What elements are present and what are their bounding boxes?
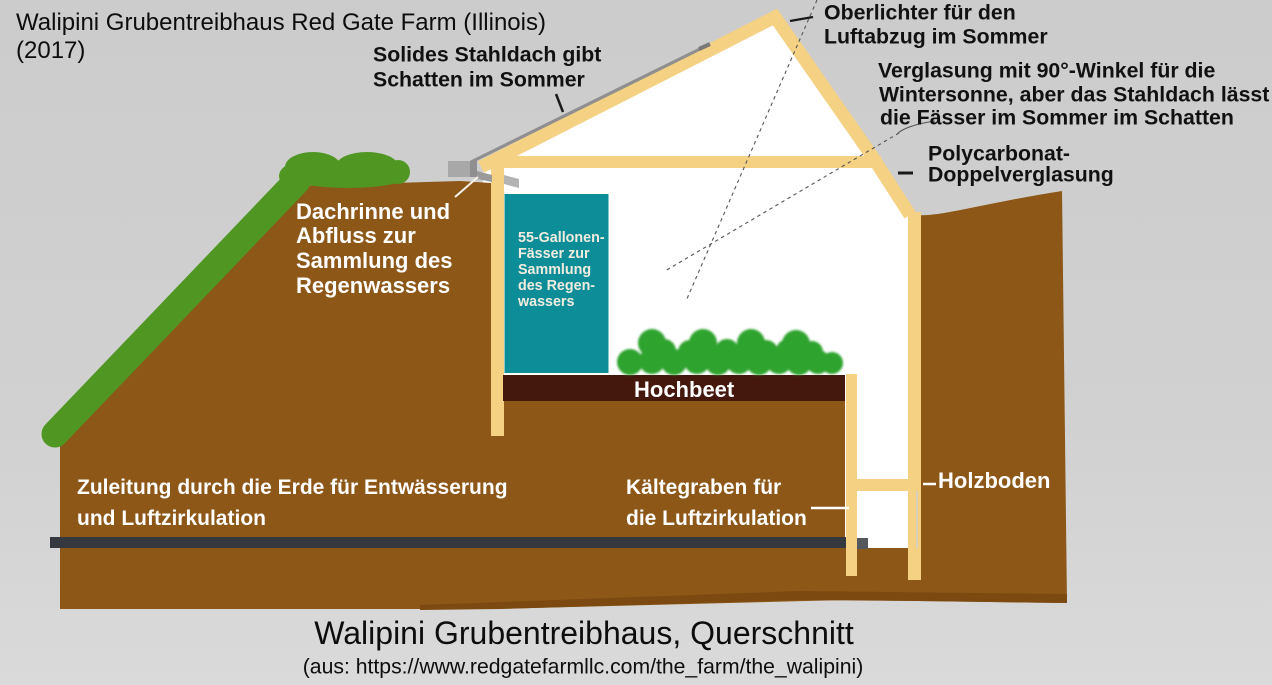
svg-text:Verglasung mit 90°-Winkel für: Verglasung mit 90°-Winkel für die: [878, 59, 1215, 83]
svg-text:Abfluss zur: Abfluss zur: [296, 223, 416, 248]
svg-text:Fässer zur: Fässer zur: [518, 246, 590, 262]
svg-text:wassers: wassers: [517, 294, 574, 310]
svg-text:Schatten im Sommer: Schatten im Sommer: [373, 68, 585, 92]
svg-text:Dachrinne und: Dachrinne und: [296, 199, 450, 224]
svg-text:55-Gallonen-: 55-Gallonen-: [518, 230, 605, 246]
svg-text:Sammlung: Sammlung: [518, 262, 591, 278]
svg-text:die Fässer im Sommer im Schatt: die Fässer im Sommer im Schatten: [880, 106, 1234, 130]
svg-text:des Regen-: des Regen-: [518, 278, 595, 294]
svg-text:(2017): (2017): [16, 37, 85, 64]
svg-text:Doppelverglasung: Doppelverglasung: [928, 163, 1114, 187]
svg-text:Zuleitung durch die Erde für E: Zuleitung durch die Erde für Entwässerun…: [77, 476, 508, 499]
svg-text:Kältegraben für: Kältegraben für: [626, 476, 781, 499]
svg-text:und Luftzirkulation: und Luftzirkulation: [77, 507, 266, 530]
svg-text:Walipini Grubentreibhaus, Quer: Walipini Grubentreibhaus, Querschnitt: [314, 615, 854, 651]
svg-text:Walipini Grubentreibhaus Red G: Walipini Grubentreibhaus Red Gate Farm (…: [16, 9, 546, 36]
svg-text:Wintersonne, aber das Stahldac: Wintersonne, aber das Stahldach lässt: [879, 83, 1269, 107]
svg-text:Luftabzug im Sommer: Luftabzug im Sommer: [824, 25, 1048, 49]
svg-text:die Luftzirkulation: die Luftzirkulation: [626, 507, 807, 530]
svg-text:Regenwassers: Regenwassers: [296, 273, 450, 298]
svg-text:Oberlichter für den: Oberlichter für den: [824, 1, 1016, 25]
svg-text:Sammlung des: Sammlung des: [296, 248, 452, 273]
svg-text:(aus: https://www.redgatefarml: (aus: https://www.redgatefarmllc.com/the…: [303, 656, 864, 679]
svg-text:Hochbeet: Hochbeet: [634, 377, 735, 402]
svg-text:Holzboden: Holzboden: [938, 468, 1050, 493]
svg-text:Solides Stahldach gibt: Solides Stahldach gibt: [373, 43, 601, 67]
